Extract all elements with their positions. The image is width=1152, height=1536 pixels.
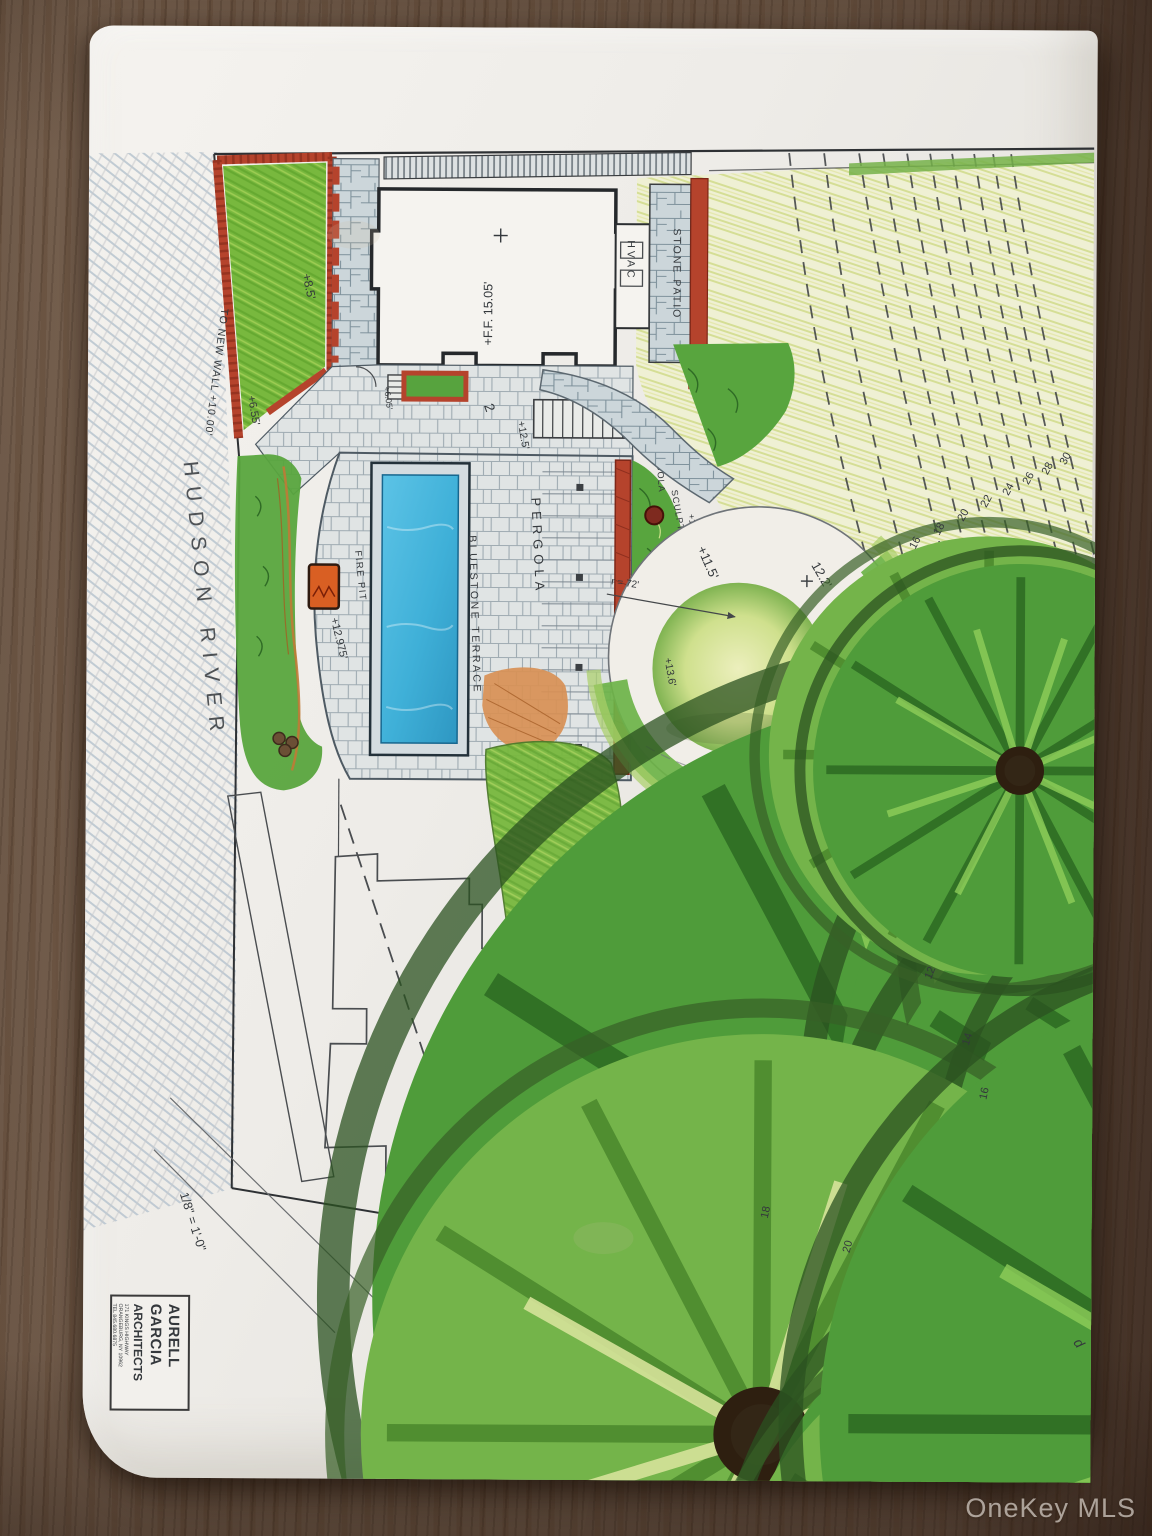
stone-patio: STONE PATIO xyxy=(649,178,708,368)
architect-name-line2: GARCIA xyxy=(147,1304,164,1366)
title-block: AURELL GARCIA ARCHITECTS 171 KINGS HIGHW… xyxy=(111,1296,190,1410)
watermark: OneKey MLS xyxy=(965,1493,1136,1524)
finished-floor-label: +F.F. 15.05' xyxy=(481,282,495,346)
sculpture-west-icon xyxy=(645,506,663,524)
hudson-river-area: HUDSON RIVER xyxy=(83,151,241,1231)
paper-stain xyxy=(328,221,380,249)
house-footprint: +F.F. 15.05' xyxy=(371,189,623,366)
site-plan-drawing: HUDSON RIVER xyxy=(82,25,1098,1482)
hvac-label: HVAC xyxy=(624,240,636,280)
paper-sheet: HUDSON RIVER xyxy=(82,25,1098,1482)
photo-of-site-plan: HUDSON RIVER xyxy=(0,0,1152,1536)
swimming-pool xyxy=(370,463,470,756)
architect-phone: TEL 845.680.6875 xyxy=(111,1304,117,1347)
contour-label: 18 xyxy=(759,1205,773,1220)
architect-name-line3: ARCHITECTS xyxy=(131,1304,145,1381)
planter xyxy=(404,373,466,399)
stone-wall-band xyxy=(384,151,691,181)
architect-name-line1: AURELL xyxy=(165,1304,182,1368)
stone-patio-label: STONE PATIO xyxy=(670,228,682,319)
hvac-room: HVAC xyxy=(615,224,650,328)
paper-stain xyxy=(573,1222,633,1254)
contour-label: 16 xyxy=(977,1086,991,1101)
fire-pit xyxy=(309,565,339,609)
